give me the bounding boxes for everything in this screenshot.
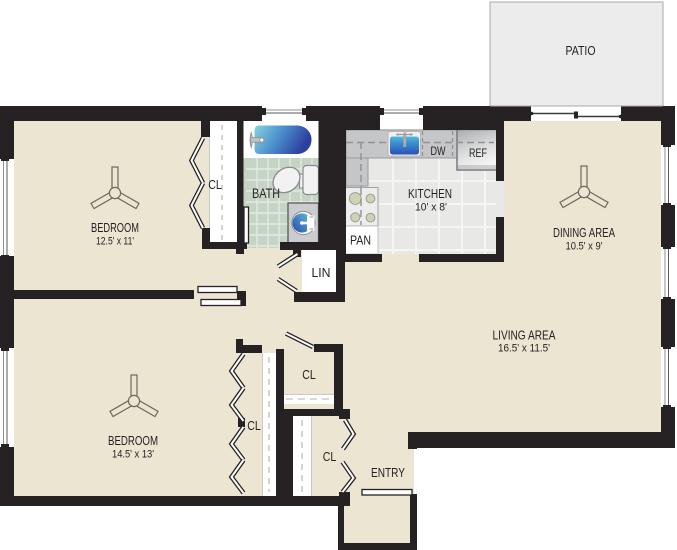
svg-text:14.5' x 13': 14.5' x 13': [112, 449, 154, 461]
svg-text:KITCHEN: KITCHEN: [408, 186, 452, 201]
svg-text:BATH: BATH: [252, 185, 280, 201]
svg-text:10.5' x 9': 10.5' x 9': [566, 241, 603, 253]
svg-text:LIN: LIN: [312, 265, 331, 280]
svg-text:CL: CL: [247, 418, 261, 433]
svg-text:DINING AREA: DINING AREA: [553, 225, 615, 240]
svg-text:10' x 8': 10' x 8': [415, 202, 447, 214]
svg-text:BEDROOM: BEDROOM: [91, 220, 139, 235]
svg-text:LIVING AREA: LIVING AREA: [493, 328, 556, 343]
svg-text:CL: CL: [323, 449, 337, 464]
svg-text:CL: CL: [302, 367, 316, 382]
svg-text:12.5' x 11': 12.5' x 11': [96, 236, 134, 248]
svg-text:DW: DW: [431, 144, 446, 158]
svg-text:PATIO: PATIO: [566, 43, 596, 58]
svg-text:16.5' x 11.5': 16.5' x 11.5': [498, 343, 550, 355]
svg-text:BEDROOM: BEDROOM: [108, 433, 158, 448]
svg-text:ENTRY: ENTRY: [371, 465, 405, 480]
svg-text:PAN: PAN: [350, 233, 371, 248]
svg-text:CL: CL: [208, 177, 222, 192]
svg-text:REF: REF: [469, 148, 487, 160]
